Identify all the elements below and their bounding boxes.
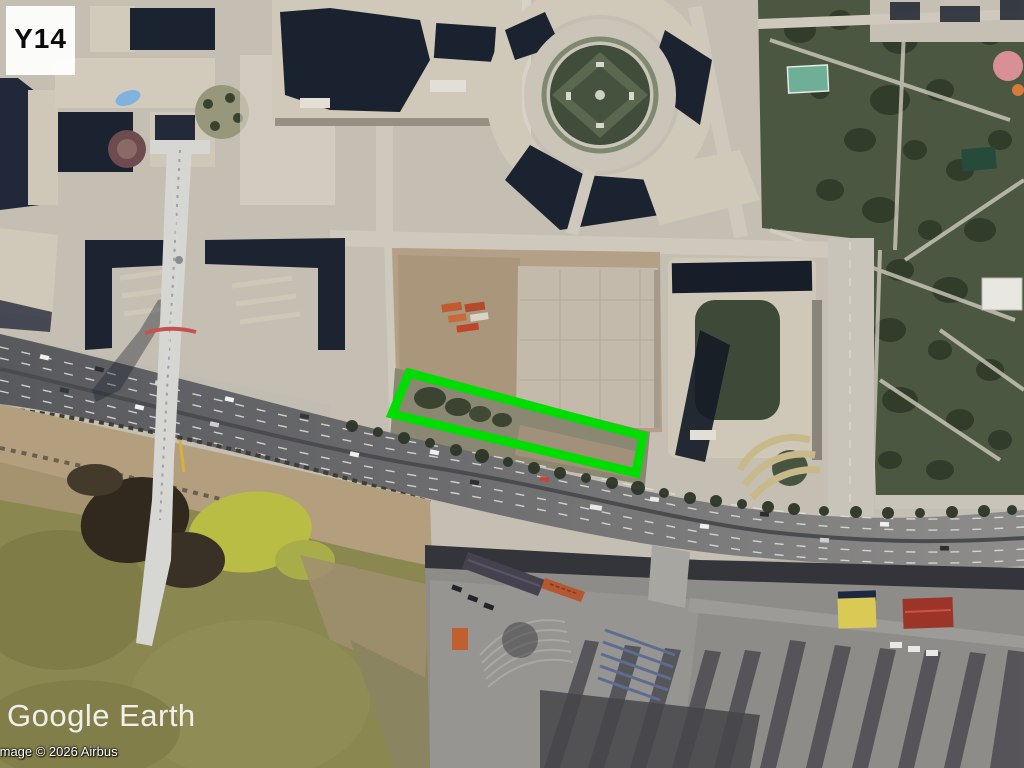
google-earth-watermark: Google Earth bbox=[7, 698, 196, 734]
attribution-text: Image © 2026 Airbus bbox=[0, 744, 118, 759]
satellite-imagery bbox=[0, 0, 1024, 768]
buildings-top-center bbox=[272, 0, 522, 126]
google-earth-viewer[interactable]: Y14 Google Earth Image © 2026 Airbus bbox=[0, 0, 1024, 768]
rail-yard bbox=[425, 545, 1024, 768]
tile-label[interactable]: Y14 bbox=[6, 6, 75, 75]
